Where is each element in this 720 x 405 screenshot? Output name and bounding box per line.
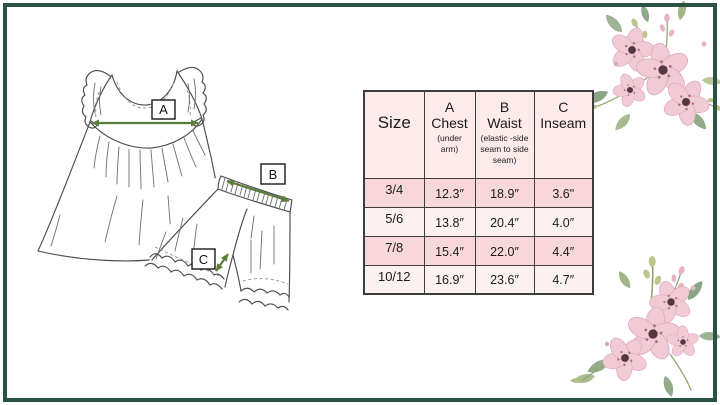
col-name-inseam: Inseam [535, 115, 593, 131]
cell-size: 10/12 [364, 265, 424, 294]
col-name-waist: Waist [476, 115, 534, 131]
measurement-label-c: C [192, 249, 215, 269]
cell-inseam: 4.7″ [534, 265, 593, 294]
cell-inseam: 4.0″ [534, 207, 593, 236]
col-header-chest: A Chest (under arm) [424, 91, 475, 178]
label-b-text: B [269, 167, 278, 182]
table-row: 5/6 13.8″ 20.4″ 4.0″ [364, 207, 593, 236]
cell-waist: 22.0″ [475, 236, 534, 265]
cell-chest: 13.8″ [424, 207, 475, 236]
cell-size: 5/6 [364, 207, 424, 236]
floral-decoration-top-right [583, 0, 720, 135]
cell-chest: 12.3″ [424, 178, 475, 207]
col-letter-b: B [476, 92, 534, 115]
col-header-waist: B Waist (elastic -side seam to side seam… [475, 91, 534, 178]
col-header-size: Size [364, 91, 424, 178]
cell-inseam: 4.4″ [534, 236, 593, 265]
col-name-chest: Chest [425, 115, 475, 131]
table-row: 7/8 15.4″ 22.0″ 4.4″ [364, 236, 593, 265]
cell-chest: 16.9″ [424, 265, 475, 294]
cell-waist: 18.9″ [475, 178, 534, 207]
size-table: Size A Chest (under arm) B Waist (elasti… [363, 90, 594, 295]
label-c-text: C [199, 252, 208, 267]
table-header-row: Size A Chest (under arm) B Waist (elasti… [364, 91, 593, 178]
illustration-canvas: A B C [0, 0, 720, 405]
size-chart-graphic: A B C [0, 0, 720, 405]
measurement-label-a: A [152, 100, 175, 119]
cell-size: 7/8 [364, 236, 424, 265]
col-letter-a: A [425, 92, 475, 115]
col-sub-inseam [535, 131, 593, 133]
col-sub-chest: (under arm) [425, 131, 475, 155]
table-row: 3/4 12.3″ 18.9″ 3.6" [364, 178, 593, 207]
cell-size: 3/4 [364, 178, 424, 207]
table-row: 10/12 16.9″ 23.6″ 4.7″ [364, 265, 593, 294]
cell-waist: 20.4″ [475, 207, 534, 236]
cell-chest: 15.4″ [424, 236, 475, 265]
label-a-text: A [159, 102, 168, 117]
cell-waist: 23.6″ [475, 265, 534, 294]
col-letter-c: C [535, 92, 593, 115]
col-sub-waist: (elastic -side seam to side seam) [476, 131, 534, 166]
garment-sketch: A B C [38, 67, 296, 313]
measurement-label-b: B [261, 164, 285, 184]
col-header-inseam: C Inseam [534, 91, 593, 178]
cell-inseam: 3.6" [534, 178, 593, 207]
